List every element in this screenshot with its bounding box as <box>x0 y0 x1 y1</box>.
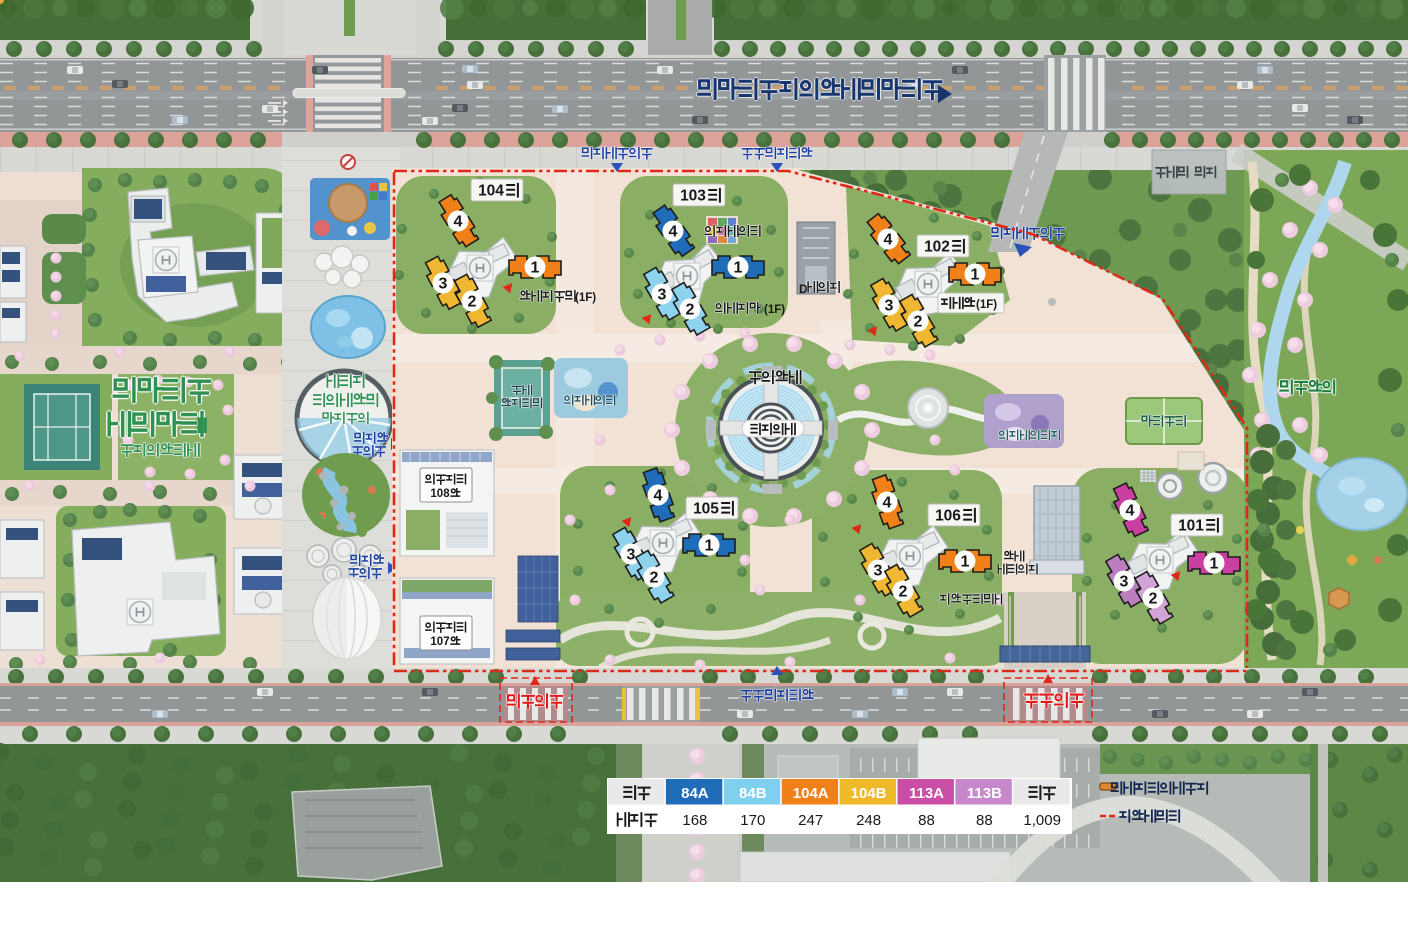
svg-text:1: 1 <box>961 554 970 571</box>
svg-text:107: 107 <box>430 636 449 648</box>
svg-text:88: 88 <box>918 812 935 829</box>
svg-text:4: 4 <box>654 488 663 505</box>
svg-text:2: 2 <box>914 314 923 331</box>
svg-text:4: 4 <box>1126 503 1135 520</box>
svg-text:II: II <box>196 413 208 438</box>
svg-text:105: 105 <box>693 501 719 518</box>
svg-text:2: 2 <box>650 570 659 587</box>
svg-text:103: 103 <box>680 188 706 205</box>
svg-text:247: 247 <box>798 812 823 829</box>
svg-text:102: 102 <box>924 239 950 256</box>
svg-text:3: 3 <box>627 547 636 564</box>
svg-text:88: 88 <box>976 812 993 829</box>
svg-text:1: 1 <box>531 260 540 277</box>
svg-text:D: D <box>799 282 808 296</box>
svg-text:3: 3 <box>885 298 894 315</box>
svg-text:84B: 84B <box>739 785 767 802</box>
svg-text:1,009: 1,009 <box>1023 812 1061 829</box>
svg-text:1: 1 <box>971 267 980 284</box>
svg-text:3: 3 <box>1120 574 1129 591</box>
svg-text:104B: 104B <box>851 785 887 802</box>
svg-text:104A: 104A <box>793 785 829 802</box>
svg-text:(1F): (1F) <box>575 292 596 304</box>
svg-text:168: 168 <box>682 812 707 829</box>
svg-text:104: 104 <box>478 183 504 200</box>
svg-text:4: 4 <box>454 214 463 231</box>
svg-text:113A: 113A <box>909 785 944 802</box>
svg-text:1: 1 <box>705 538 714 555</box>
svg-text:1: 1 <box>1210 556 1219 573</box>
svg-text:4: 4 <box>669 224 678 241</box>
svg-text:2: 2 <box>468 294 477 311</box>
svg-text:1: 1 <box>734 260 743 277</box>
svg-text:108: 108 <box>430 488 450 500</box>
svg-text:84A: 84A <box>681 785 709 802</box>
svg-text:(1F): (1F) <box>976 299 997 311</box>
svg-text:2: 2 <box>899 584 908 601</box>
svg-text:113B: 113B <box>967 785 1002 802</box>
svg-text:248: 248 <box>856 812 881 829</box>
svg-text:4: 4 <box>884 232 893 249</box>
svg-text:106: 106 <box>935 508 961 525</box>
svg-text:101: 101 <box>1178 518 1204 535</box>
svg-text:2: 2 <box>686 302 695 319</box>
svg-text:4: 4 <box>883 495 892 512</box>
svg-text:3: 3 <box>874 563 883 580</box>
svg-text:(1F): (1F) <box>764 304 785 316</box>
svg-text:3: 3 <box>439 276 448 293</box>
svg-text:3: 3 <box>658 287 667 304</box>
svg-text:170: 170 <box>740 812 765 829</box>
svg-text:2: 2 <box>1149 591 1158 608</box>
